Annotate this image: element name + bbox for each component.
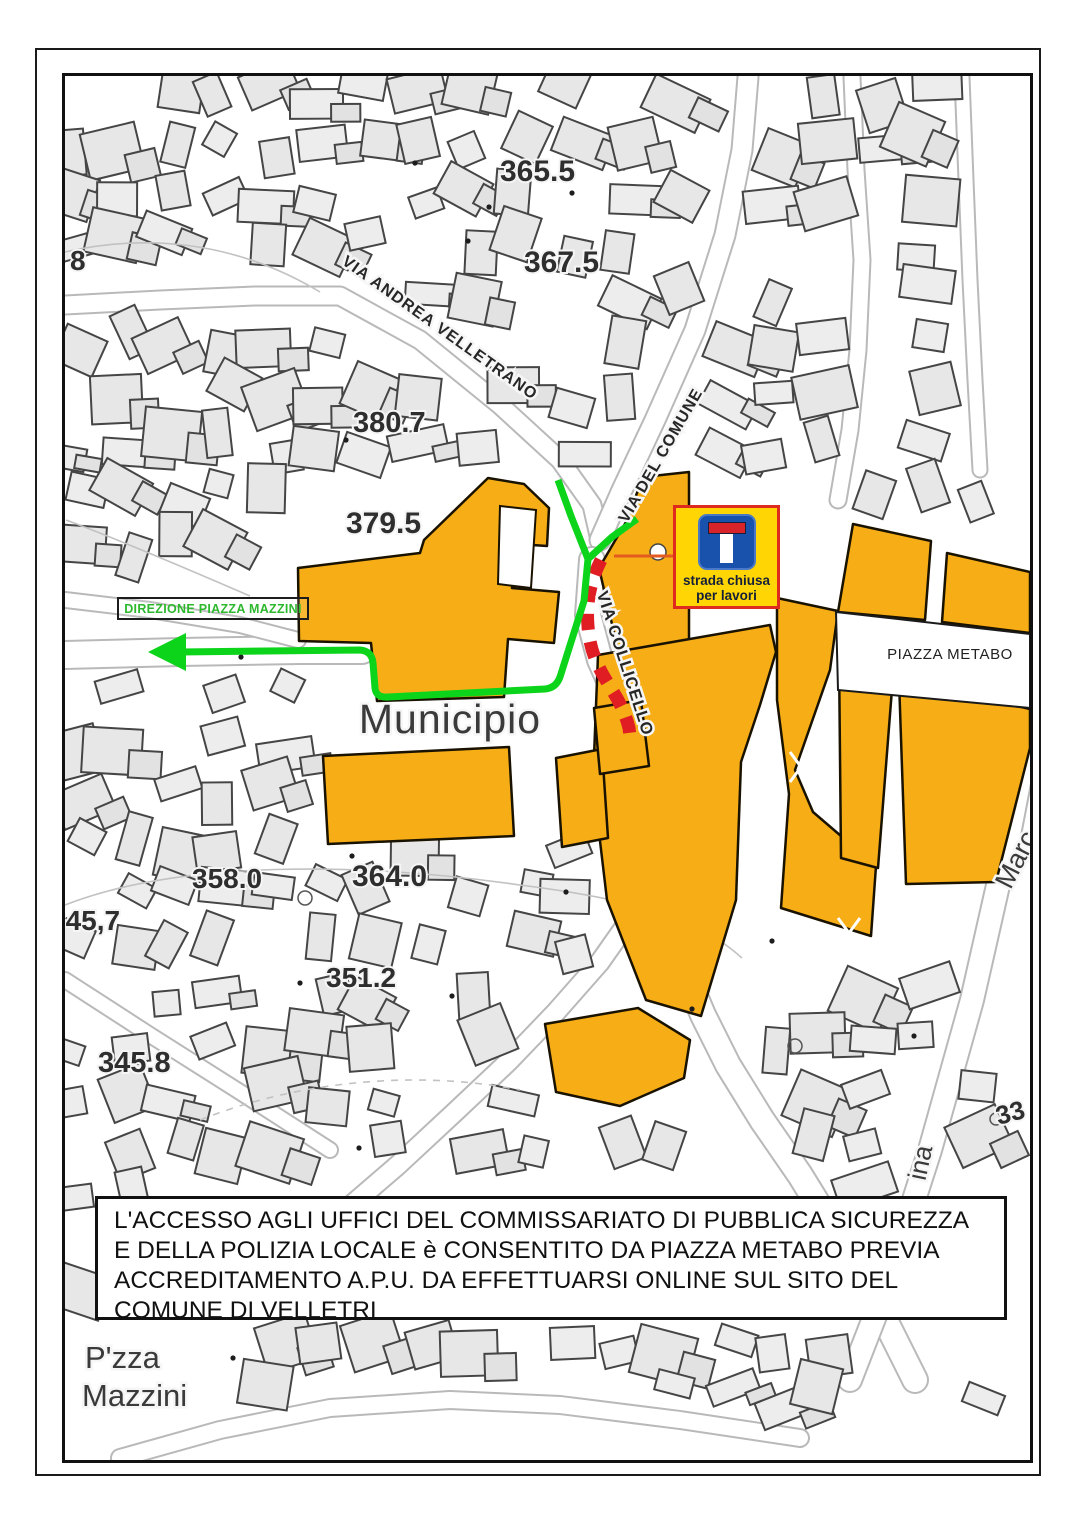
svg-text:365.5: 365.5 <box>500 155 575 188</box>
sign-text-line1: strada chiusa <box>676 573 777 588</box>
svg-text:379.5: 379.5 <box>346 507 421 540</box>
map: VIA ANDREA VELLETRANO VIA DEL COMUNE VIA… <box>62 73 1033 1463</box>
svg-text:367.5: 367.5 <box>524 246 599 279</box>
svg-text:33: 33 <box>992 1094 1028 1130</box>
direction-label: DIREZIONE PIAZZA MAZZINI <box>124 602 302 616</box>
highlight-block-municipio <box>323 747 514 844</box>
dead-end-icon <box>698 514 756 570</box>
highlight-block-central <box>593 625 776 1016</box>
svg-text:345,7: 345,7 <box>65 905 120 936</box>
page: VIA ANDREA VELLETRANO VIA DEL COMUNE VIA… <box>0 0 1080 1528</box>
municipio-label: Municipio <box>359 696 541 742</box>
highlight-top-right <box>942 553 1030 633</box>
sign-text: strada chiusa per lavori <box>676 573 777 603</box>
svg-text:351.2: 351.2 <box>326 962 396 993</box>
svg-text:364.0: 364.0 <box>352 860 427 893</box>
svg-text:345.8: 345.8 <box>98 1047 171 1079</box>
svg-text:8: 8 <box>70 245 86 276</box>
direction-label-box: DIREZIONE PIAZZA MAZZINI <box>117 597 309 620</box>
notice-box: L'ACCESSO AGLI UFFICI DEL COMMISSARIATO … <box>95 1196 1007 1320</box>
svg-text:380.7: 380.7 <box>353 407 426 439</box>
piazza-mazzini-label-line1: P'zza <box>85 1340 161 1375</box>
piazza-mazzini-label-line2: Mazzini <box>82 1378 187 1413</box>
road-closed-sign: strada chiusa per lavori <box>673 505 780 609</box>
piazza-metabo-label: PIAZZA METABO <box>887 646 1013 663</box>
svg-text:358.0: 358.0 <box>192 863 262 894</box>
sign-text-line2: per lavori <box>676 588 777 603</box>
highlight-block-pentagon <box>545 1008 690 1106</box>
notice-text: L'ACCESSO AGLI UFFICI DEL COMMISSARIATO … <box>114 1207 968 1324</box>
highlight-band-above-piazza <box>838 524 931 620</box>
